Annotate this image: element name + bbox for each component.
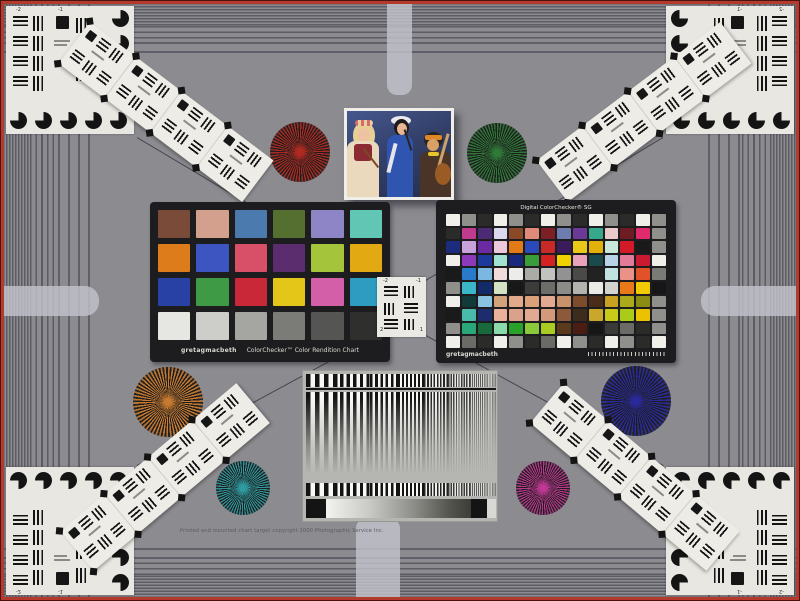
- sg-color-patch: [589, 214, 603, 226]
- color-patch: [196, 278, 228, 306]
- edge-notch: [86, 17, 94, 25]
- edge-notch: [670, 53, 678, 61]
- sg-color-patch: [462, 228, 476, 240]
- tri-bar-group: [772, 573, 787, 585]
- sg-color-patch: [620, 336, 634, 348]
- color-patch: [350, 244, 382, 272]
- sg-color-patch: [620, 255, 634, 267]
- solid-black-square: [731, 16, 744, 29]
- pacman-fiducial: [112, 574, 129, 591]
- tri-bar-group: [586, 155, 602, 171]
- tri-bar-group: [246, 151, 262, 167]
- edge-notch: [90, 568, 98, 576]
- sg-color-patch: [462, 309, 476, 321]
- sg-color-patch: [652, 241, 666, 253]
- sg-color-patch: [589, 241, 603, 253]
- edge-notch: [146, 129, 154, 137]
- sg-color-patch: [525, 323, 539, 335]
- sg-color-patch: [541, 309, 555, 321]
- sg-color-patch: [589, 323, 603, 335]
- sg-color-patch: [446, 255, 460, 267]
- color-patch: [158, 278, 190, 306]
- sg-color-patch: [494, 255, 508, 267]
- tri-bar-group: [91, 505, 107, 521]
- tri-bar-group: [198, 448, 214, 464]
- wedge-label: -1: [737, 588, 742, 593]
- sg-color-patch: [541, 296, 555, 308]
- sweep-segment: [306, 374, 340, 387]
- sg-color-patch: [605, 323, 619, 335]
- pacman-fiducial: [35, 112, 52, 129]
- edge-notch: [222, 457, 230, 465]
- color-patch: [235, 210, 267, 238]
- edge-notch: [648, 453, 656, 461]
- sg-color-patch: [541, 336, 555, 348]
- wedge-label: -2: [16, 588, 21, 593]
- tri-bar-group: [115, 84, 131, 100]
- right-figure-necklace: [428, 152, 439, 156]
- iso-camera-test-chart: -2-1-2-1-2-1-2-1: [0, 0, 800, 601]
- sg-color-patch: [636, 228, 650, 240]
- tri-bar-group: [559, 174, 575, 190]
- tri-bar-group: [207, 153, 223, 169]
- sg-color-patch: [541, 255, 555, 267]
- tri-bar-group: [647, 77, 663, 93]
- color-patch: [235, 312, 267, 340]
- classic-patch-grid: [158, 210, 382, 340]
- tri-bar-group: [13, 533, 28, 545]
- tri-bar-group: [641, 495, 657, 511]
- solid-black-square: [156, 453, 169, 466]
- sg-color-patch: [525, 309, 539, 321]
- sg-color-patch: [636, 255, 650, 267]
- solid-black-square: [690, 502, 703, 515]
- tri-bar-group: [650, 105, 666, 121]
- tri-bar-group: [755, 16, 767, 31]
- pacman-fiducial: [10, 472, 27, 489]
- tri-bar-group: [127, 95, 143, 111]
- tri-bar-group: [13, 553, 28, 565]
- sweep-segment: [340, 374, 370, 387]
- tri-bar-group: [215, 432, 231, 448]
- sg-patch-grid: [446, 214, 666, 348]
- tri-bar-group: [660, 67, 676, 83]
- tri-bar-group: [772, 56, 787, 68]
- sweep-segment: [398, 374, 424, 387]
- tri-bar-group: [69, 49, 85, 65]
- sg-color-patch: [573, 214, 587, 226]
- color-patch: [273, 244, 305, 272]
- tri-bar-group: [108, 48, 124, 64]
- sweep-segment: [448, 374, 470, 387]
- tri-bar-group: [772, 36, 787, 48]
- micro-text-bar: [220, 414, 233, 425]
- sweep-segment: [484, 374, 496, 387]
- tri-bar-group: [555, 146, 571, 162]
- sg-color-patch: [573, 323, 587, 335]
- tri-bar-group: [568, 136, 584, 152]
- edge-notch: [188, 416, 196, 424]
- sg-color-patch: [605, 336, 619, 348]
- color-patch: [311, 210, 343, 238]
- pacman-fiducial: [773, 472, 790, 489]
- sg-color-patch: [652, 336, 666, 348]
- sg-color-patch: [652, 282, 666, 294]
- sg-color-patch: [509, 282, 523, 294]
- sg-color-patch: [573, 296, 587, 308]
- sweep-segment: [484, 483, 496, 496]
- micro-text-bar: [54, 555, 67, 557]
- gray-gradient-strip: [326, 499, 471, 518]
- siemens-star-red: [270, 122, 330, 182]
- edge-notch: [702, 95, 710, 103]
- color-patch: [273, 210, 305, 238]
- sg-color-patch: [494, 268, 508, 280]
- edge-notch: [532, 156, 540, 164]
- tri-bar-group: [223, 394, 239, 410]
- sg-color-patch: [509, 241, 523, 253]
- color-patch: [196, 244, 228, 272]
- pacman-fiducial: [671, 574, 688, 591]
- sg-color-patch: [462, 268, 476, 280]
- tri-bar-group: [624, 447, 640, 463]
- sg-color-patch: [605, 255, 619, 267]
- mini-bar-group: [404, 319, 416, 330]
- tri-bar-group: [173, 129, 189, 145]
- tri-bar-group: [724, 51, 740, 67]
- tri-bar-group: [755, 76, 767, 91]
- edge-notch: [56, 527, 64, 535]
- sg-color-patch: [509, 309, 523, 321]
- sg-color-patch: [557, 336, 571, 348]
- sg-color-patch: [478, 323, 492, 335]
- sg-color-patch: [636, 336, 650, 348]
- edge-notch: [614, 493, 622, 501]
- tri-bar-group: [33, 36, 45, 51]
- sg-color-patch: [573, 309, 587, 321]
- sg-color-patch: [557, 255, 571, 267]
- tri-bar-group: [712, 521, 728, 537]
- sg-color-patch: [541, 228, 555, 240]
- sg-color-patch: [462, 336, 476, 348]
- sg-color-patch: [462, 214, 476, 226]
- tri-bar-group: [665, 96, 681, 112]
- sg-color-patch: [652, 228, 666, 240]
- tri-bar-group: [755, 530, 767, 545]
- square-wave-sweep-bottom: [306, 483, 496, 496]
- tri-bar-group: [692, 42, 708, 58]
- sg-color-patch: [478, 309, 492, 321]
- sg-color-patch: [589, 309, 603, 321]
- tri-bar-group: [755, 56, 767, 71]
- edge-notch: [610, 164, 618, 172]
- sg-color-patch: [494, 296, 508, 308]
- solid-black-square: [56, 572, 69, 585]
- pacman-fiducial: [748, 472, 765, 489]
- edge-notch: [134, 531, 142, 539]
- tri-bar-group: [614, 102, 630, 118]
- sg-color-patch: [494, 323, 508, 335]
- tri-bar-group: [200, 117, 216, 133]
- sg-color-patch: [478, 296, 492, 308]
- tri-bar-group: [772, 513, 787, 525]
- sg-color-patch: [509, 323, 523, 335]
- tri-bar-group: [219, 164, 235, 180]
- tri-bar-group: [619, 131, 635, 147]
- wedge-label: -1: [737, 8, 742, 13]
- tri-bar-group: [541, 409, 557, 425]
- sg-color-patch: [589, 282, 603, 294]
- tri-bar-group: [629, 483, 645, 499]
- sweep-segment: [340, 483, 370, 496]
- lute-body: [435, 163, 451, 185]
- tri-bar-group: [13, 76, 28, 88]
- solid-black-square: [131, 64, 144, 77]
- sg-color-patch: [573, 228, 587, 240]
- sg-color-patch: [509, 214, 523, 226]
- sg-color-patch: [478, 268, 492, 280]
- pacman-fiducial: [112, 10, 129, 27]
- sg-color-patch: [446, 309, 460, 321]
- pacman-fiducial: [748, 112, 765, 129]
- sg-color-patch: [620, 309, 634, 321]
- pacman-fiducial: [773, 112, 790, 129]
- sg-color-patch: [573, 255, 587, 267]
- solid-black-square: [68, 527, 81, 540]
- sg-color-patch: [525, 241, 539, 253]
- sg-color-patch: [541, 214, 555, 226]
- sg-color-patch: [509, 255, 523, 267]
- sg-color-patch: [620, 241, 634, 253]
- sg-color-patch: [478, 336, 492, 348]
- tri-bar-group: [597, 458, 613, 474]
- sg-color-patch: [525, 268, 539, 280]
- edge-notch: [656, 130, 664, 138]
- tri-bar-group: [161, 118, 177, 134]
- solid-black-square: [602, 428, 615, 441]
- sg-color-patch: [525, 255, 539, 267]
- pacman-fiducial: [698, 112, 715, 129]
- registration-tab-top: [387, 0, 412, 95]
- sg-color-patch: [541, 268, 555, 280]
- sg-color-patch: [494, 228, 508, 240]
- sg-color-patch: [557, 241, 571, 253]
- tri-bar-group: [33, 76, 45, 91]
- tri-bar-group: [655, 506, 671, 522]
- solid-black-square: [112, 490, 125, 503]
- edge-notch: [224, 121, 232, 129]
- sweep-segment: [424, 374, 448, 387]
- sg-color-patch: [620, 268, 634, 280]
- siemens-star-teal: [216, 461, 270, 515]
- sg-color-patch: [478, 214, 492, 226]
- sg-color-patch: [573, 241, 587, 253]
- micro-text-bar: [132, 488, 145, 499]
- edge-notch: [54, 60, 62, 68]
- color-patch: [196, 210, 228, 238]
- wedge-label: -2: [779, 8, 784, 13]
- solid-black-square: [85, 30, 98, 43]
- sg-color-patch: [557, 228, 571, 240]
- solid-black-square: [731, 572, 744, 585]
- tri-bar-group: [700, 510, 716, 526]
- tri-bar-group: [33, 550, 45, 565]
- tri-bar-group: [585, 446, 601, 462]
- solid-black-square: [646, 465, 659, 478]
- sweep-segment: [470, 374, 484, 387]
- sg-color-patch: [525, 282, 539, 294]
- pacman-fiducial: [60, 472, 77, 489]
- tri-bar-group: [678, 85, 694, 101]
- tri-bar-group: [612, 436, 628, 452]
- sg-color-patch: [462, 296, 476, 308]
- wedge-label: -1: [58, 8, 63, 13]
- pacman-fiducial: [671, 10, 688, 27]
- sg-color-patch: [478, 255, 492, 267]
- classic-caption: gretagmacbeth ColorChecker™ Color Rendit…: [158, 340, 382, 360]
- mini-bar-group: [384, 303, 396, 315]
- black-end-patch: [306, 499, 326, 518]
- sg-color-patch: [652, 268, 666, 280]
- sg-color-patch: [446, 336, 460, 348]
- sg-color-patch: [605, 241, 619, 253]
- sg-color-patch: [494, 309, 508, 321]
- mini-label-minus1: -1: [416, 279, 421, 284]
- tri-bar-group: [233, 174, 249, 190]
- sg-color-patch: [462, 241, 476, 253]
- edge-notch: [132, 52, 140, 60]
- photo-image: [347, 111, 451, 197]
- edge-notch: [658, 530, 666, 538]
- sg-color-patch: [557, 282, 571, 294]
- tri-bar-group: [13, 16, 28, 28]
- sg-color-patch: [446, 214, 460, 226]
- tri-bar-group: [553, 421, 569, 437]
- sg-color-patch: [589, 228, 603, 240]
- micro-text-bar: [88, 525, 101, 536]
- sg-color-patch: [525, 336, 539, 348]
- edge-notch: [100, 94, 108, 102]
- pacman-fiducial: [35, 472, 52, 489]
- tri-bar-group: [568, 399, 584, 415]
- sg-color-patch: [462, 282, 476, 294]
- contrast-fade-field: [306, 392, 496, 481]
- tri-bar-group: [604, 140, 620, 156]
- tri-bar-group: [685, 532, 701, 548]
- solid-black-square: [200, 416, 213, 429]
- classic-title-text: ColorChecker™ Color Rendition Chart: [247, 347, 359, 354]
- sg-color-patch: [652, 255, 666, 267]
- tri-bar-group: [154, 82, 170, 98]
- mini-bar-group: [384, 286, 398, 298]
- tri-bar-group: [76, 568, 88, 583]
- sg-color-patch: [525, 214, 539, 226]
- pacman-fiducial: [723, 472, 740, 489]
- tri-bar-group: [580, 410, 596, 426]
- pacman-fiducial: [723, 112, 740, 129]
- sg-color-patch: [525, 296, 539, 308]
- sg-color-patch: [636, 323, 650, 335]
- sg-color-patch: [652, 214, 666, 226]
- sg-color-patch: [636, 309, 650, 321]
- sg-color-patch: [573, 336, 587, 348]
- solid-black-square: [223, 134, 236, 147]
- mini-label-minus2: -2: [383, 279, 388, 284]
- wedge-label: -2: [779, 588, 784, 593]
- pacman-fiducial: [698, 472, 715, 489]
- tri-bar-group: [772, 553, 787, 565]
- sg-color-patch: [605, 309, 619, 321]
- tri-bar-group: [141, 497, 157, 513]
- sg-color-patch: [478, 228, 492, 240]
- tri-bar-group: [755, 510, 767, 525]
- registration-tab-right: [701, 286, 800, 316]
- sg-color-patch: [652, 296, 666, 308]
- tri-bar-group: [573, 165, 589, 181]
- color-patch: [311, 244, 343, 272]
- edge-notch: [578, 122, 586, 130]
- tri-bar-group: [772, 533, 787, 545]
- micro-text-bar: [610, 122, 623, 132]
- edge-notch: [192, 164, 200, 172]
- tri-bar-group: [171, 469, 187, 485]
- pacman-fiducial: [85, 472, 102, 489]
- micro-text-bar: [54, 44, 67, 46]
- tri-bar-group: [127, 506, 143, 522]
- frequency-sweep-panel: [302, 370, 498, 522]
- sg-color-patch: [573, 268, 587, 280]
- sg-color-patch: [636, 241, 650, 253]
- sg-color-patch: [557, 296, 571, 308]
- sg-color-patch: [557, 323, 571, 335]
- tri-bar-group: [656, 473, 672, 489]
- tri-bar-group: [166, 441, 182, 457]
- sg-color-patch: [541, 282, 555, 294]
- tri-bar-group: [699, 543, 715, 559]
- tri-bar-group: [772, 76, 787, 88]
- sg-color-patch: [620, 323, 634, 335]
- colorchecker-classic-chart: gretagmacbeth ColorChecker™ Color Rendit…: [150, 202, 390, 362]
- pacman-fiducial: [10, 112, 27, 129]
- black-end-patch: [471, 499, 487, 518]
- sg-color-patch: [494, 241, 508, 253]
- tri-bar-group: [566, 432, 582, 448]
- color-patch: [196, 312, 228, 340]
- sweep-divider-line: [306, 388, 496, 390]
- tri-bar-group: [83, 543, 99, 559]
- sweep-segment: [424, 483, 448, 496]
- tri-bar-group: [772, 16, 787, 28]
- tri-bar-group: [706, 32, 722, 48]
- color-patch: [158, 244, 190, 272]
- mini-label-1: 1: [420, 328, 423, 333]
- tri-bar-group: [185, 460, 201, 476]
- tri-bar-group: [673, 520, 689, 536]
- tri-bar-group: [13, 573, 28, 585]
- tri-bar-group: [33, 16, 45, 31]
- tri-bar-group: [110, 522, 126, 538]
- tri-bar-group: [33, 56, 45, 71]
- micro-text-bar: [176, 451, 189, 462]
- left-figure-crown: [355, 120, 373, 126]
- tri-bar-group: [96, 70, 112, 86]
- tri-bar-group: [632, 120, 648, 136]
- tri-bar-group: [135, 468, 151, 484]
- sg-color-patch: [605, 282, 619, 294]
- edge-notch: [570, 456, 578, 464]
- tri-bar-group: [33, 510, 45, 525]
- mini-bar-group: [404, 286, 416, 298]
